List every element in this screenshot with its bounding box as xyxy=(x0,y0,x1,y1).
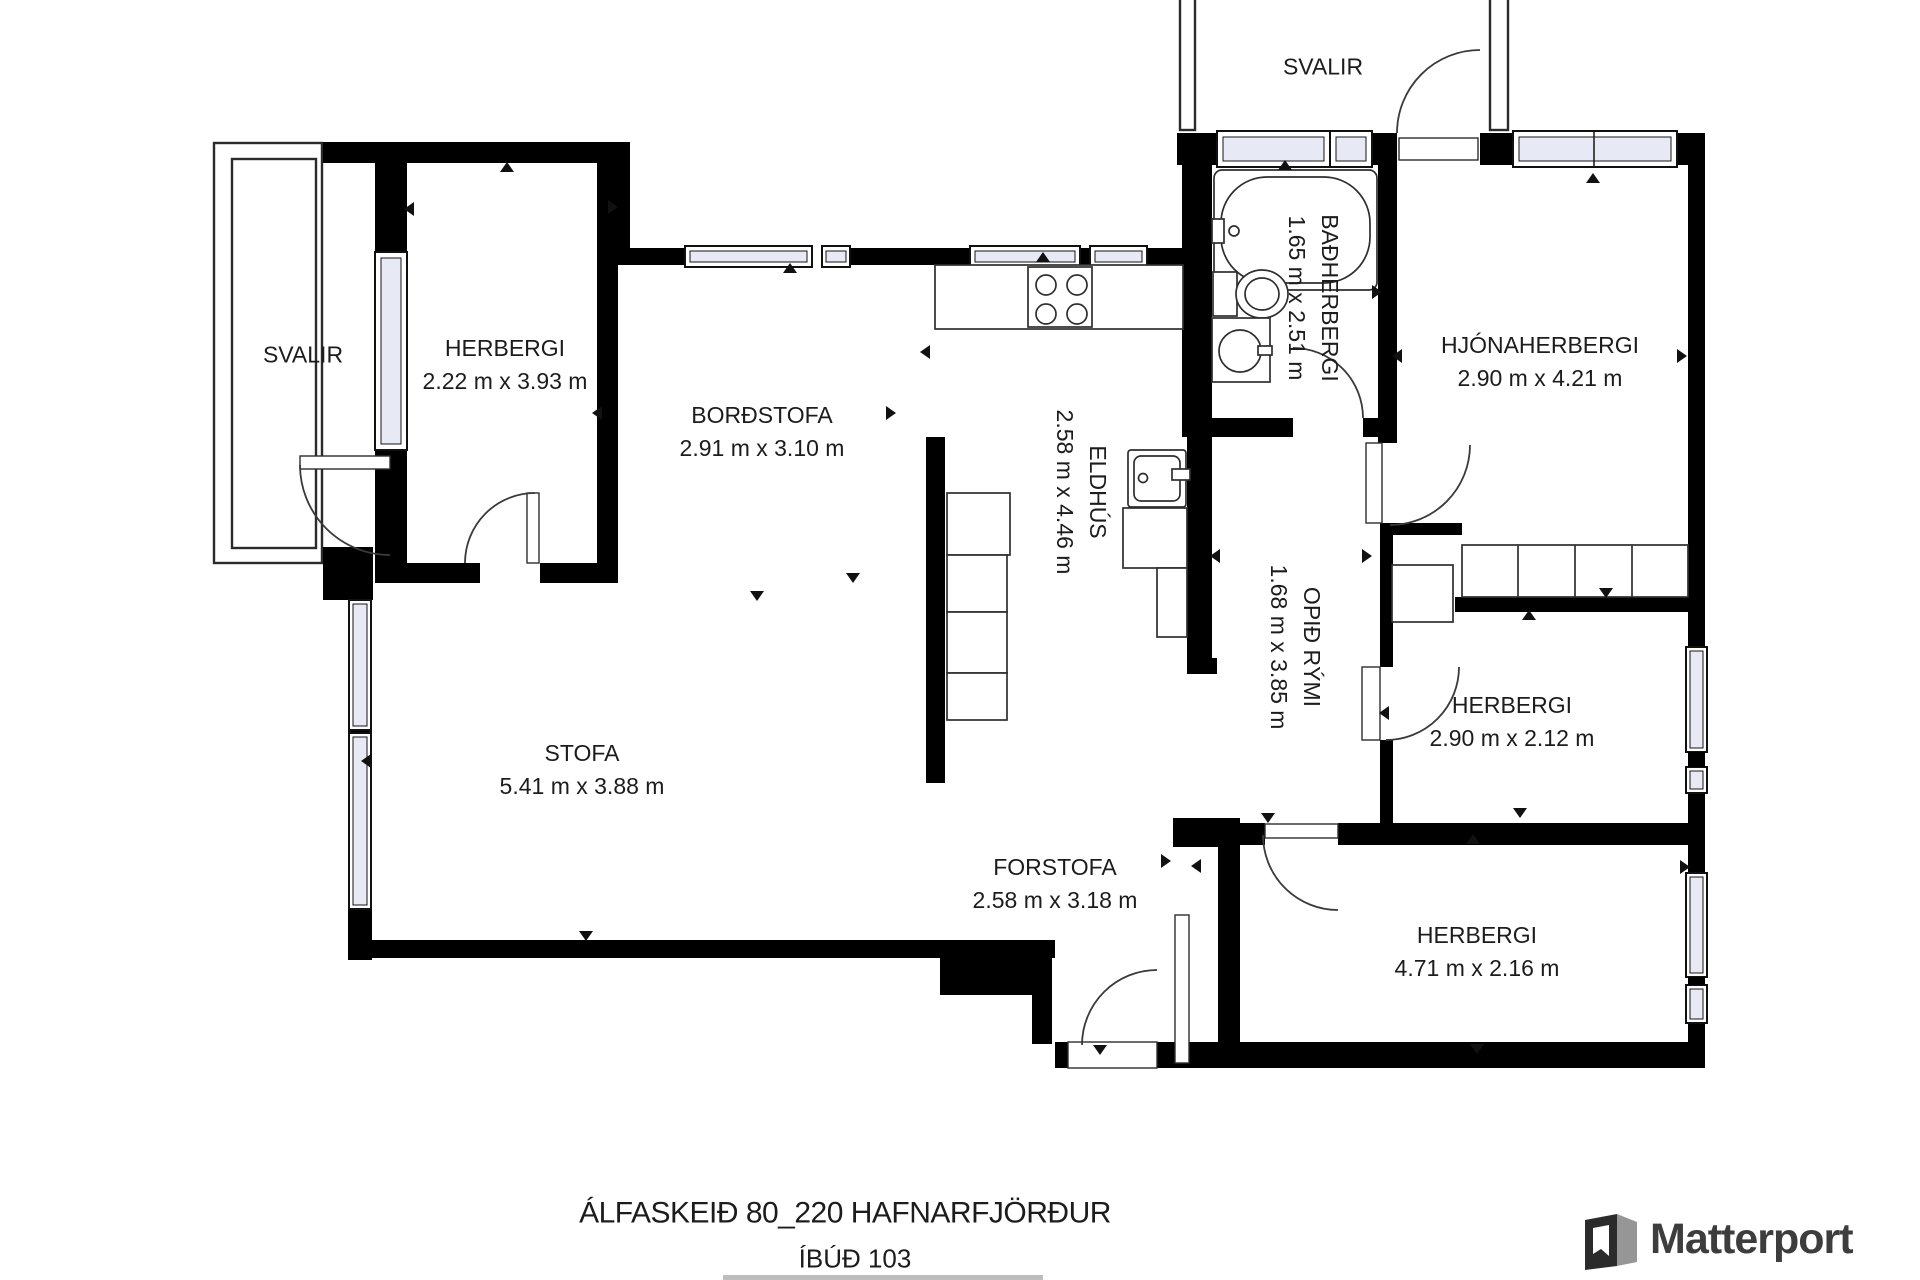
window xyxy=(1090,246,1147,267)
wardrobe-niche xyxy=(1392,565,1453,622)
window xyxy=(970,246,1080,267)
room-label-bordstofa: BORÐSTOFA2.91 m x 3.10 m xyxy=(680,399,845,465)
window xyxy=(1686,985,1707,1023)
room-label-svalir-left: SVALIR xyxy=(263,339,343,372)
floor-plan-page: SVALIR SVALIR HERBERGI2.22 m x 3.93 m BO… xyxy=(0,0,1920,1280)
dimension-arrow xyxy=(1513,808,1527,818)
dimension-arrow xyxy=(920,345,930,359)
room-label-svalir-top: SVALIR xyxy=(1283,51,1363,84)
cropped-bottom-bar xyxy=(723,1275,1043,1280)
door-arc xyxy=(1082,970,1157,1045)
room-label-herbergi-se: HERBERGI4.71 m x 2.16 m xyxy=(1395,919,1560,985)
room-label-stofa: STOFA5.41 m x 3.88 m xyxy=(500,737,665,803)
window xyxy=(1330,131,1372,167)
room-label-eldhus: ELDHÚS2.58 m x 4.46 m xyxy=(1048,410,1114,575)
door-leaf xyxy=(1399,138,1478,160)
kitchen-cabinets xyxy=(947,493,1010,720)
room-label-forstofa: FORSTOFA2.58 m x 3.18 m xyxy=(973,851,1138,917)
window xyxy=(375,252,407,450)
door-leaf xyxy=(1265,824,1338,838)
wardrobe-row xyxy=(1462,545,1688,597)
window xyxy=(822,246,850,267)
dimension-arrow xyxy=(1161,854,1171,868)
door-leaf xyxy=(527,493,539,563)
floorplan-unit-label: ÍBÚÐ 103 xyxy=(799,1243,912,1276)
room-label-hjonaherbergi: HJÓNAHERBERGI2.90 m x 4.21 m xyxy=(1441,329,1639,395)
bathroom-sink-icon xyxy=(1212,318,1272,382)
door-arc xyxy=(1390,445,1470,525)
dimension-arrow xyxy=(1586,173,1600,183)
door-arc xyxy=(1263,835,1338,910)
dimension-arrow xyxy=(1362,549,1372,563)
entry-door-leaf xyxy=(1068,1042,1157,1068)
window xyxy=(1686,647,1707,752)
floorplan-address: ÁLFASKEIÐ 80_220 HAFNARFJÖRÐUR xyxy=(579,1197,1111,1230)
room-label-opid-rymi: OPIÐ RÝMI1.68 m x 3.85 m xyxy=(1262,565,1328,730)
dimension-arrow xyxy=(886,406,896,420)
stove-icon xyxy=(1028,267,1092,327)
window xyxy=(1686,767,1707,793)
door-leaf xyxy=(300,456,390,469)
door-arc xyxy=(1397,50,1480,133)
window xyxy=(1686,873,1707,977)
dimension-arrow xyxy=(1191,859,1201,873)
door-arc xyxy=(465,493,535,563)
dimension-arrow xyxy=(1261,813,1275,823)
window xyxy=(1217,131,1330,167)
door-leaf xyxy=(1362,667,1380,740)
floor-plan-canvas xyxy=(0,0,1920,1280)
matterport-logo-icon xyxy=(1585,1214,1637,1270)
toilet-icon xyxy=(1213,270,1288,318)
dimension-arrow xyxy=(846,573,860,583)
room-label-herbergi-nw: HERBERGI2.22 m x 3.93 m xyxy=(423,332,588,398)
kitchen-counter-l xyxy=(1123,508,1187,637)
window xyxy=(1513,131,1677,167)
room-label-badherbergi: BAÐHERBERGI1.65 m x 2.51 m xyxy=(1280,214,1346,381)
door-leaf xyxy=(1175,915,1189,1063)
door-leaf xyxy=(1366,443,1382,523)
window xyxy=(349,600,371,730)
dimension-arrow xyxy=(500,162,514,172)
dimension-arrow xyxy=(750,591,764,601)
dimension-arrow xyxy=(579,931,593,941)
room-label-herbergi-mid: HERBERGI2.90 m x 2.12 m xyxy=(1430,689,1595,755)
matterport-logo-text: Matterport xyxy=(1650,1218,1853,1261)
dimension-arrow xyxy=(1677,349,1687,363)
kitchen-sink-icon xyxy=(1128,450,1190,507)
window xyxy=(685,246,812,267)
